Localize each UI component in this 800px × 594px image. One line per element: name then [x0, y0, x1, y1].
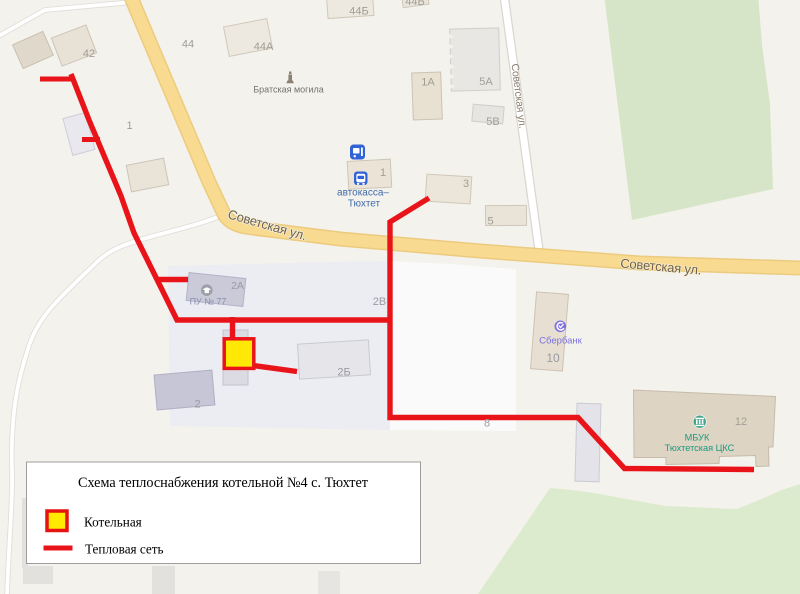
- svg-text:Сбербанк: Сбербанк: [539, 336, 583, 347]
- svg-text:2Б: 2Б: [337, 367, 350, 379]
- svg-text:44А: 44А: [254, 41, 274, 53]
- svg-text:5А: 5А: [479, 76, 493, 88]
- svg-text:5В: 5В: [486, 116, 499, 128]
- svg-text:1А: 1А: [421, 77, 435, 89]
- svg-text:1: 1: [380, 167, 386, 179]
- svg-text:3: 3: [463, 178, 469, 190]
- svg-text:Тюхтетская ЦКС: Тюхтетская ЦКС: [665, 443, 735, 453]
- svg-text:12: 12: [735, 416, 747, 428]
- svg-text:1: 1: [127, 120, 133, 132]
- svg-text:44: 44: [182, 39, 194, 51]
- svg-text:ПУ № 77: ПУ № 77: [190, 297, 227, 307]
- svg-text:10: 10: [546, 351, 560, 365]
- svg-text:2А: 2А: [231, 280, 244, 292]
- svg-text:Тепловая сеть: Тепловая сеть: [85, 542, 164, 557]
- svg-text:42: 42: [83, 48, 95, 60]
- svg-text:Схема теплоснабжения котельной: Схема теплоснабжения котельной №4 с. Тюх…: [78, 475, 368, 491]
- svg-text:44В: 44В: [405, 0, 425, 8]
- svg-text:Тюхтет: Тюхтет: [348, 199, 381, 210]
- svg-text:Братская могила: Братская могила: [253, 85, 324, 95]
- svg-text:автокасса–: автокасса–: [337, 188, 389, 199]
- svg-text:2: 2: [195, 399, 201, 411]
- svg-text:5: 5: [487, 216, 493, 228]
- svg-text:44Б: 44Б: [349, 6, 368, 18]
- svg-text:Котельная: Котельная: [84, 515, 142, 530]
- svg-text:2В: 2В: [373, 296, 386, 308]
- svg-text:8: 8: [484, 418, 490, 430]
- svg-text:МБУК: МБУК: [685, 433, 710, 443]
